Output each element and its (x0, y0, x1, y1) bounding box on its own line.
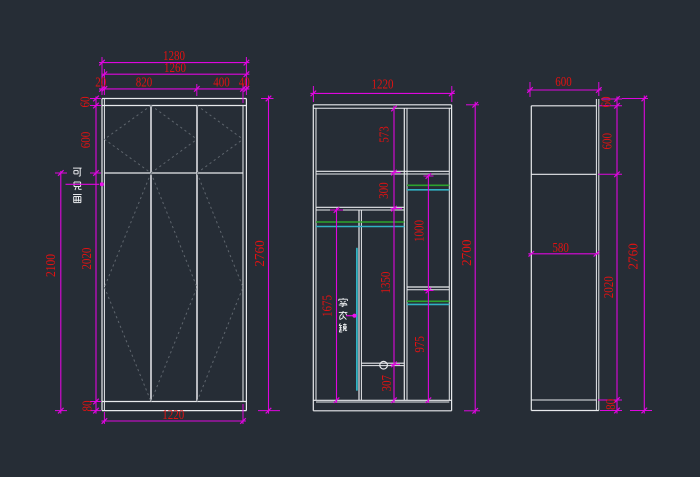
svg-text:573: 573 (378, 126, 393, 143)
svg-text:60: 60 (599, 97, 614, 108)
svg-text:1260: 1260 (164, 61, 186, 76)
svg-text:820: 820 (136, 76, 153, 91)
svg-text:1350: 1350 (379, 272, 394, 294)
svg-text:40: 40 (239, 76, 250, 91)
svg-text:307: 307 (380, 375, 395, 392)
svg-text:1220: 1220 (162, 408, 184, 423)
svg-text:2760: 2760 (253, 240, 268, 267)
svg-text:600: 600 (555, 75, 572, 90)
svg-text:400: 400 (213, 76, 230, 91)
svg-text:1000: 1000 (413, 220, 428, 242)
svg-text:975: 975 (413, 336, 428, 353)
svg-text:80: 80 (604, 399, 619, 410)
svg-text:2020: 2020 (602, 276, 617, 298)
svg-text:1220: 1220 (372, 78, 394, 93)
svg-text:2760: 2760 (627, 243, 642, 270)
svg-text:580: 580 (552, 241, 569, 256)
svg-text:20: 20 (95, 76, 106, 91)
svg-text:1675: 1675 (321, 295, 336, 317)
svg-text:600: 600 (79, 132, 94, 149)
svg-text:2700: 2700 (460, 239, 475, 266)
svg-text:2100: 2100 (44, 254, 59, 277)
svg-text:80: 80 (81, 401, 96, 412)
svg-text:2020: 2020 (80, 248, 95, 270)
svg-text:600: 600 (600, 133, 615, 150)
svg-text:60: 60 (79, 97, 94, 108)
svg-text:300: 300 (377, 182, 392, 199)
